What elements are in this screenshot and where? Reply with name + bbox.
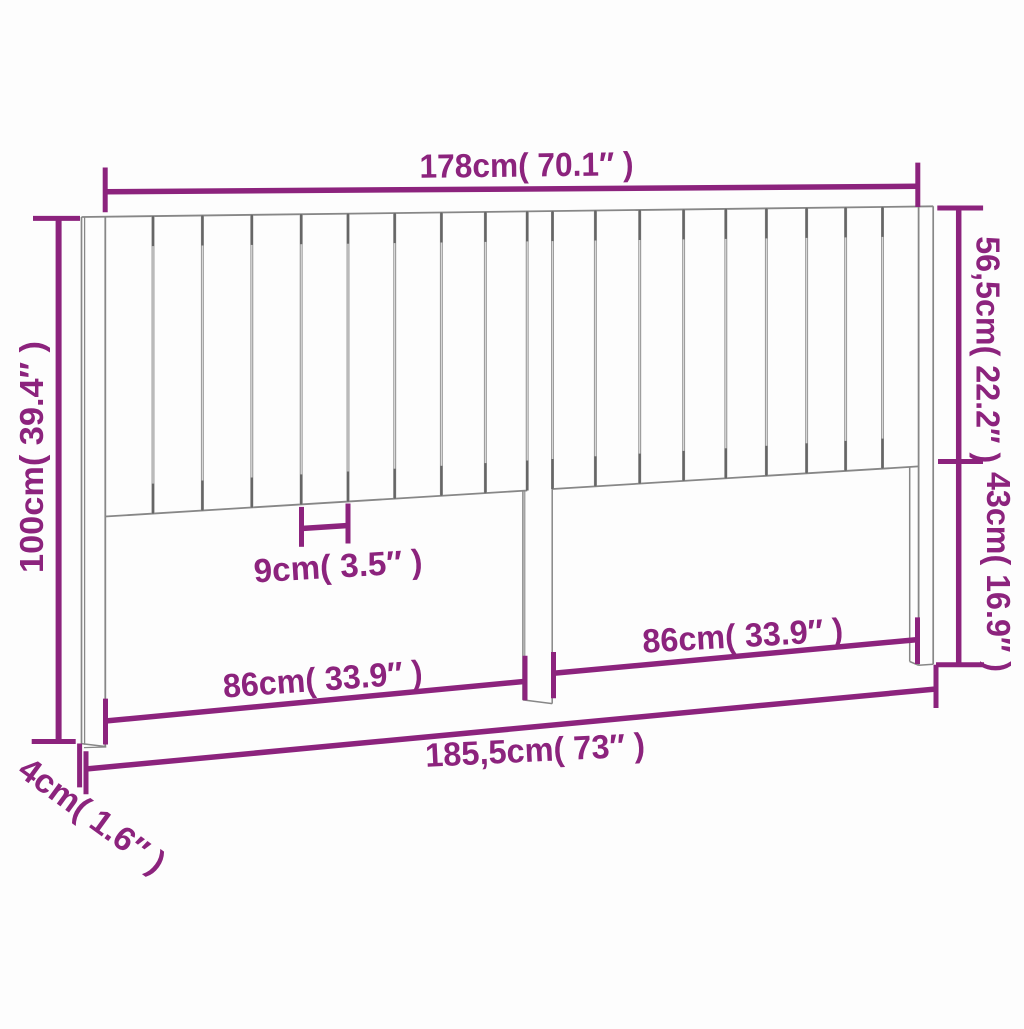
svg-text:43cm( 16.9″ ): 43cm( 16.9″ ) [979, 472, 1016, 672]
svg-text:178cm( 70.1″ ): 178cm( 70.1″ ) [419, 146, 633, 186]
svg-text:56,5cm( 22.2″ ): 56,5cm( 22.2″ ) [969, 236, 1006, 463]
svg-text:100cm( 39.4″ ): 100cm( 39.4″ ) [14, 341, 51, 573]
